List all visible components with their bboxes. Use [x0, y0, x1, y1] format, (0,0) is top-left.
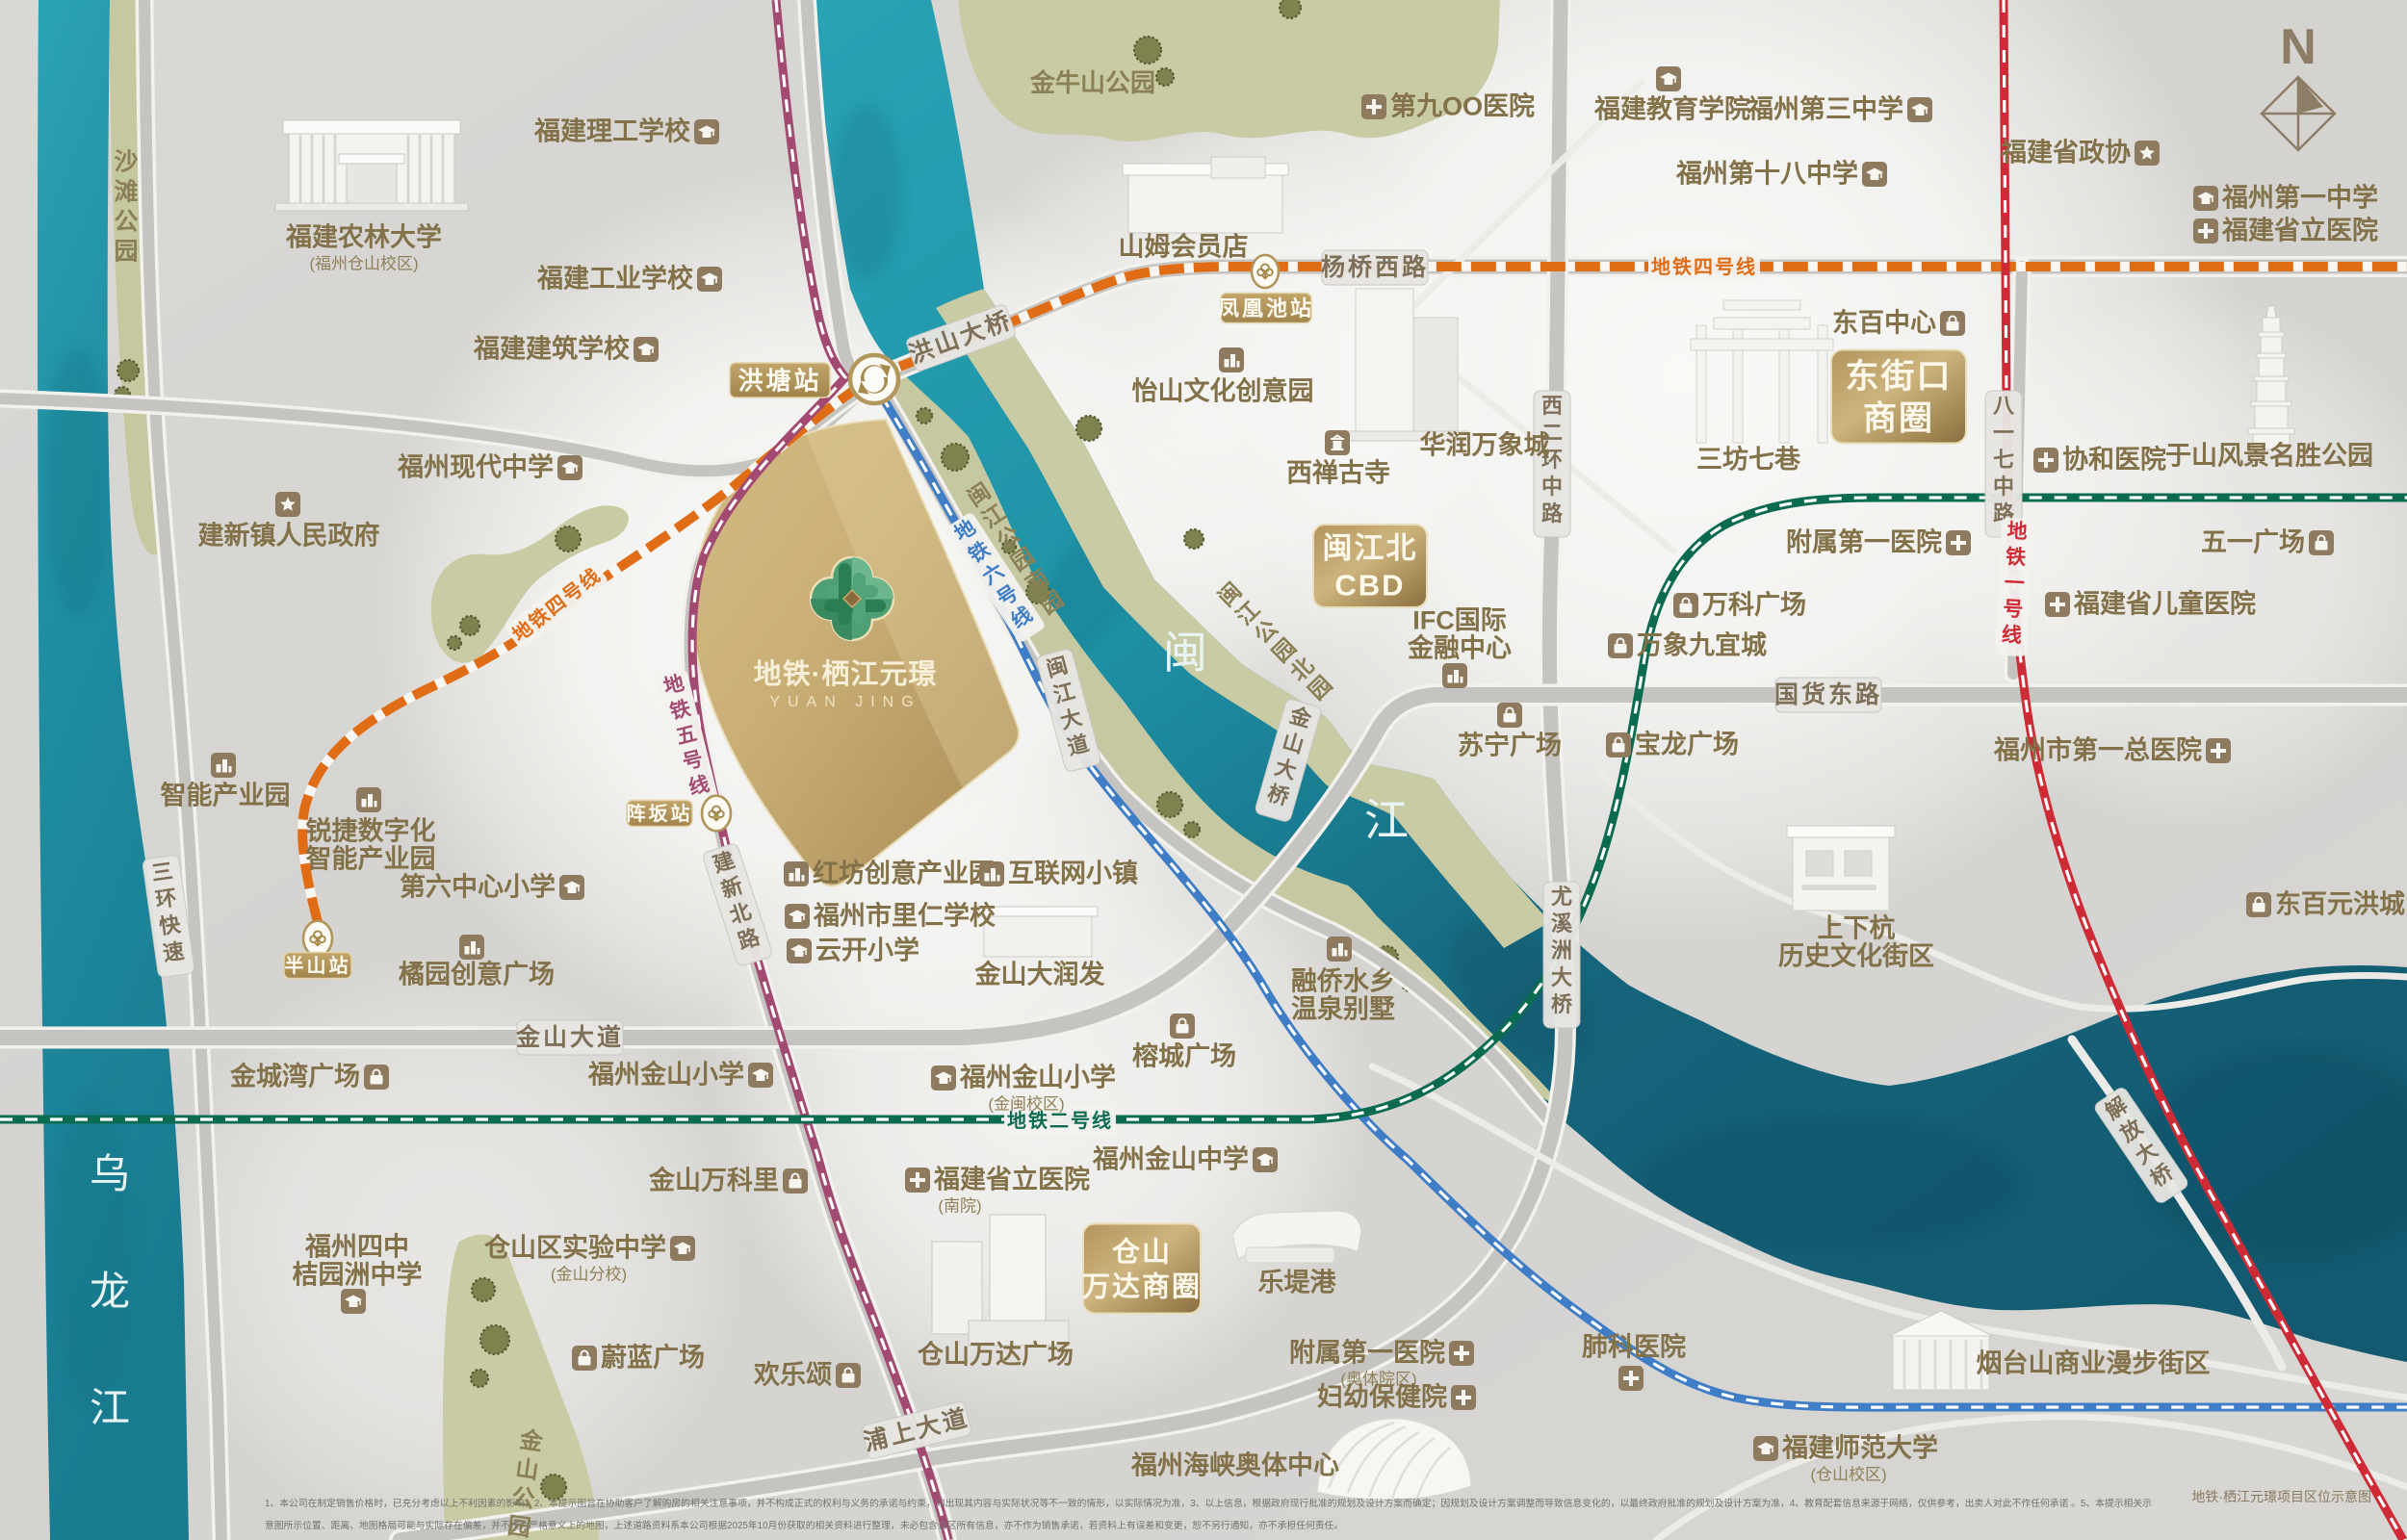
svg-text:号: 号 [2003, 598, 2024, 621]
svg-text:快: 快 [158, 911, 183, 938]
svg-text:金: 金 [517, 1425, 546, 1455]
svg-text:五一广场: 五一广场 [2201, 527, 2305, 556]
svg-text:IFC国际: IFC国际 [1412, 605, 1507, 634]
svg-text:路: 路 [1541, 501, 1564, 526]
svg-text:苏宁广场: 苏宁广场 [1458, 730, 1562, 759]
svg-text:福州第三中学: 福州第三中学 [1747, 93, 1903, 123]
svg-text:福建教育学院: 福建教育学院 [1593, 93, 1750, 123]
svg-text:融侨水乡: 融侨水乡 [1291, 966, 1395, 995]
svg-text:西: 西 [1541, 394, 1563, 418]
svg-text:环: 环 [154, 885, 178, 912]
svg-text:线: 线 [2001, 623, 2022, 647]
svg-text:地铁·栖江元璟项目区位示意图: 地铁·栖江元璟项目区位示意图 [2191, 1489, 2371, 1504]
svg-text:(南院): (南院) [938, 1196, 981, 1215]
svg-text:铁: 铁 [2006, 545, 2027, 569]
svg-text:东百元洪城: 东百元洪城 [2275, 888, 2405, 918]
svg-text:沙: 沙 [114, 149, 138, 176]
svg-text:福建师范大学: 福建师范大学 [1781, 1432, 1938, 1462]
svg-text:速: 速 [162, 938, 186, 965]
svg-text:溪: 溪 [1551, 911, 1573, 936]
svg-text:福州金山小学: 福州金山小学 [959, 1062, 1116, 1091]
svg-text:福建省儿童医院: 福建省儿童医院 [2073, 588, 2256, 618]
svg-text:乐堤港: 乐堤港 [1258, 1268, 1337, 1296]
svg-text:东百中心: 东百中心 [1832, 307, 1936, 337]
svg-text:桔园洲中学: 桔园洲中学 [293, 1259, 423, 1289]
svg-text:金山大道: 金山大道 [515, 1023, 624, 1051]
svg-text:桥: 桥 [1551, 992, 1572, 1016]
svg-text:金山万科里: 金山万科里 [648, 1165, 779, 1194]
svg-text:红坊创意产业园: 红坊创意产业园 [813, 858, 995, 887]
svg-text:山姆会员店: 山姆会员店 [1119, 232, 1249, 261]
svg-text:七: 七 [1993, 448, 2014, 472]
svg-text:金山大润发: 金山大润发 [974, 959, 1105, 988]
svg-text:福州市第一总医院: 福州市第一总医院 [1993, 734, 2202, 764]
svg-text:江: 江 [1364, 795, 1409, 845]
svg-text:智能产业园: 智能产业园 [306, 843, 436, 873]
svg-text:上下杭: 上下杭 [1818, 912, 1896, 942]
svg-text:福建省立医院: 福建省立医院 [933, 1164, 1090, 1193]
svg-text:一: 一 [2004, 572, 2025, 595]
svg-text:山: 山 [514, 1455, 541, 1484]
svg-text:万象九宜城: 万象九宜城 [1637, 629, 1767, 659]
svg-text:福建工业学校: 福建工业学校 [536, 263, 693, 293]
svg-text:宝龙广场: 宝龙广场 [1635, 729, 1739, 758]
svg-text:福建农林大学: 福建农林大学 [285, 221, 442, 251]
svg-text:历史文化街区: 历史文化街区 [1778, 940, 1934, 970]
svg-text:锐捷数字化: 锐捷数字化 [306, 815, 436, 845]
svg-text:福建省立医院: 福建省立医院 [2221, 215, 2378, 244]
svg-text:仓山: 仓山 [1111, 1236, 1172, 1268]
svg-text:三: 三 [150, 859, 174, 885]
svg-text:乌: 乌 [90, 1151, 130, 1196]
svg-text:互联网小镇: 互联网小镇 [1008, 859, 1138, 887]
svg-text:欢乐颂: 欢乐颂 [753, 1360, 832, 1389]
svg-text:怡山文化创意园: 怡山文化创意园 [1132, 375, 1314, 405]
svg-text:一: 一 [1993, 421, 2014, 445]
svg-text:园: 园 [114, 239, 138, 266]
svg-text:福州金山中学: 福州金山中学 [1092, 1143, 1249, 1173]
svg-text:烟台山商业漫步街区: 烟台山商业漫步街区 [1977, 1347, 2211, 1377]
svg-text:地: 地 [2006, 519, 2028, 543]
svg-text:(福州仓山校区): (福州仓山校区) [309, 254, 418, 272]
svg-text:福建建筑学校: 福建建筑学校 [473, 333, 630, 363]
svg-text:三坊七巷: 三坊七巷 [1696, 445, 1801, 474]
svg-text:金牛山公园: 金牛山公园 [1029, 68, 1155, 97]
svg-text:CBD: CBD [1334, 568, 1405, 602]
svg-text:凤凰池站: 凤凰池站 [1218, 296, 1314, 321]
svg-text:建新镇人民政府: 建新镇人民政府 [198, 520, 380, 550]
svg-text:温泉别墅: 温泉别墅 [1291, 993, 1395, 1023]
svg-text:万科广场: 万科广场 [1702, 590, 1806, 619]
svg-text:国货东路: 国货东路 [1774, 680, 1882, 708]
svg-text:第九OO医院: 第九OO医院 [1390, 90, 1535, 120]
svg-text:公: 公 [114, 209, 138, 236]
svg-text:杨桥西路: 杨桥西路 [1321, 254, 1429, 281]
svg-text:洲: 洲 [1551, 938, 1572, 962]
svg-text:商圈: 商圈 [1863, 399, 1934, 437]
svg-text:八: 八 [1993, 394, 2015, 418]
svg-text:尤: 尤 [1551, 885, 1572, 909]
svg-text:YUAN JING: YUAN JING [769, 694, 920, 710]
svg-text:智能产业园: 智能产业园 [161, 780, 291, 809]
svg-text:福州第一中学: 福州第一中学 [2221, 182, 2378, 212]
svg-text:福州第十八中学: 福州第十八中学 [1675, 158, 1858, 188]
svg-text:附属第一医院: 附属第一医院 [1786, 526, 1942, 556]
svg-text:半山站: 半山站 [285, 954, 351, 977]
svg-text:地铁·栖江元璟: 地铁·栖江元璟 [754, 658, 938, 690]
svg-text:滩: 滩 [114, 178, 138, 206]
svg-text:大: 大 [1551, 965, 1572, 989]
svg-text:附属第一医院: 附属第一医院 [1289, 1337, 1445, 1367]
svg-text:洪塘站: 洪塘站 [738, 366, 821, 395]
svg-text:福州市里仁学校: 福州市里仁学校 [813, 900, 996, 930]
svg-text:第六中心小学: 第六中心小学 [400, 871, 556, 901]
svg-text:协和医院: 协和医院 [2062, 444, 2166, 474]
svg-text:福州现代中学: 福州现代中学 [397, 451, 554, 481]
svg-text:(金山分校): (金山分校) [551, 1265, 627, 1283]
svg-text:东街口: 东街口 [1845, 358, 1952, 396]
svg-text:万达商圈: 万达商圈 [1082, 1270, 1202, 1302]
svg-text:金城湾广场: 金城湾广场 [229, 1061, 360, 1091]
svg-text:榕城广场: 榕城广场 [1132, 1040, 1236, 1070]
svg-text:华润万象城: 华润万象城 [1420, 429, 1550, 459]
svg-text:福州海峡奥体中心: 福州海峡奥体中心 [1130, 1450, 1339, 1479]
svg-text:于山风景名胜公园: 于山风景名胜公园 [2165, 440, 2373, 470]
svg-text:意图所示位置、距离、地图格局可能与实际存在偏差，并不作为严格: 意图所示位置、距离、地图格局可能与实际存在偏差，并不作为严格意义上的地图，上述道… [265, 1519, 1343, 1531]
svg-text:金融中心: 金融中心 [1407, 632, 1512, 662]
svg-text:龙: 龙 [90, 1269, 130, 1314]
svg-text:中: 中 [1541, 475, 1563, 499]
svg-text:福州四中: 福州四中 [304, 1232, 409, 1261]
svg-text:橘园创意广场: 橘园创意广场 [399, 959, 555, 988]
svg-text:N: N [2280, 19, 2316, 75]
svg-text:福州金山小学: 福州金山小学 [587, 1059, 744, 1089]
svg-text:福建省政协: 福建省政协 [2000, 138, 2131, 167]
svg-text:(金闽校区): (金闽校区) [988, 1094, 1064, 1113]
svg-text:仓山区实验中学: 仓山区实验中学 [483, 1232, 666, 1262]
svg-text:蔚蓝广场: 蔚蓝广场 [601, 1343, 705, 1372]
svg-text:妇幼保健院: 妇幼保健院 [1317, 1381, 1447, 1411]
svg-text:阵坂站: 阵坂站 [627, 802, 693, 825]
svg-text:仓山万达广场: 仓山万达广场 [917, 1340, 1074, 1369]
svg-text:西禅古寺: 西禅古寺 [1286, 458, 1390, 487]
svg-text:闽: 闽 [1163, 628, 1207, 678]
svg-text:地铁四号线: 地铁四号线 [1651, 255, 1757, 278]
svg-text:肺科医院: 肺科医院 [1582, 1331, 1686, 1361]
svg-text:江: 江 [90, 1385, 130, 1430]
svg-text:福建理工学校: 福建理工学校 [533, 115, 690, 145]
svg-text:闽江北: 闽江北 [1323, 531, 1418, 565]
svg-text:中: 中 [1993, 475, 2014, 499]
svg-text:云开小学: 云开小学 [815, 935, 919, 964]
svg-text:(仓山校区): (仓山校区) [1810, 1465, 1886, 1483]
svg-text:1、本公司在制定销售价格时，已充分考虑以上不利因素的影响，2: 1、本公司在制定销售价格时，已充分考虑以上不利因素的影响，2、本提示图旨在协助客… [265, 1497, 2152, 1509]
